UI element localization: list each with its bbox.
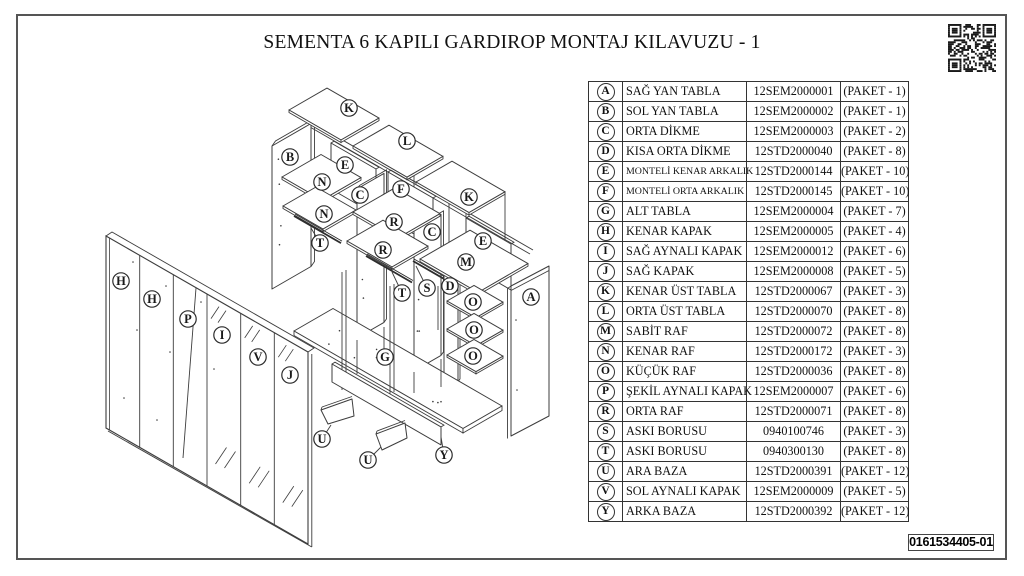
svg-text:N: N (319, 207, 328, 221)
svg-text:M: M (460, 255, 472, 269)
svg-text:Y: Y (439, 448, 448, 462)
svg-text:A: A (526, 290, 535, 304)
svg-text:U: U (363, 453, 372, 467)
svg-text:J: J (287, 368, 293, 382)
svg-text:R: R (389, 215, 399, 229)
svg-text:H: H (147, 292, 157, 306)
svg-text:R: R (378, 243, 388, 257)
svg-text:D: D (445, 279, 454, 293)
svg-text:C: C (355, 188, 364, 202)
svg-text:F: F (397, 182, 405, 196)
svg-text:T: T (316, 236, 325, 250)
svg-text:O: O (468, 349, 478, 363)
svg-text:I: I (220, 328, 225, 342)
svg-text:K: K (464, 190, 474, 204)
svg-text:K: K (344, 101, 354, 115)
svg-text:B: B (286, 150, 294, 164)
svg-text:O: O (469, 323, 479, 337)
svg-text:G: G (380, 350, 390, 364)
svg-text:E: E (341, 158, 349, 172)
svg-text:N: N (317, 175, 326, 189)
svg-text:U: U (317, 432, 326, 446)
svg-text:S: S (424, 281, 431, 295)
svg-text:T: T (398, 286, 407, 300)
svg-text:P: P (184, 312, 192, 326)
svg-text:V: V (253, 350, 262, 364)
svg-text:H: H (116, 274, 126, 288)
svg-text:E: E (479, 234, 487, 248)
svg-text:C: C (427, 225, 436, 239)
svg-text:O: O (468, 295, 478, 309)
svg-text:L: L (403, 134, 411, 148)
